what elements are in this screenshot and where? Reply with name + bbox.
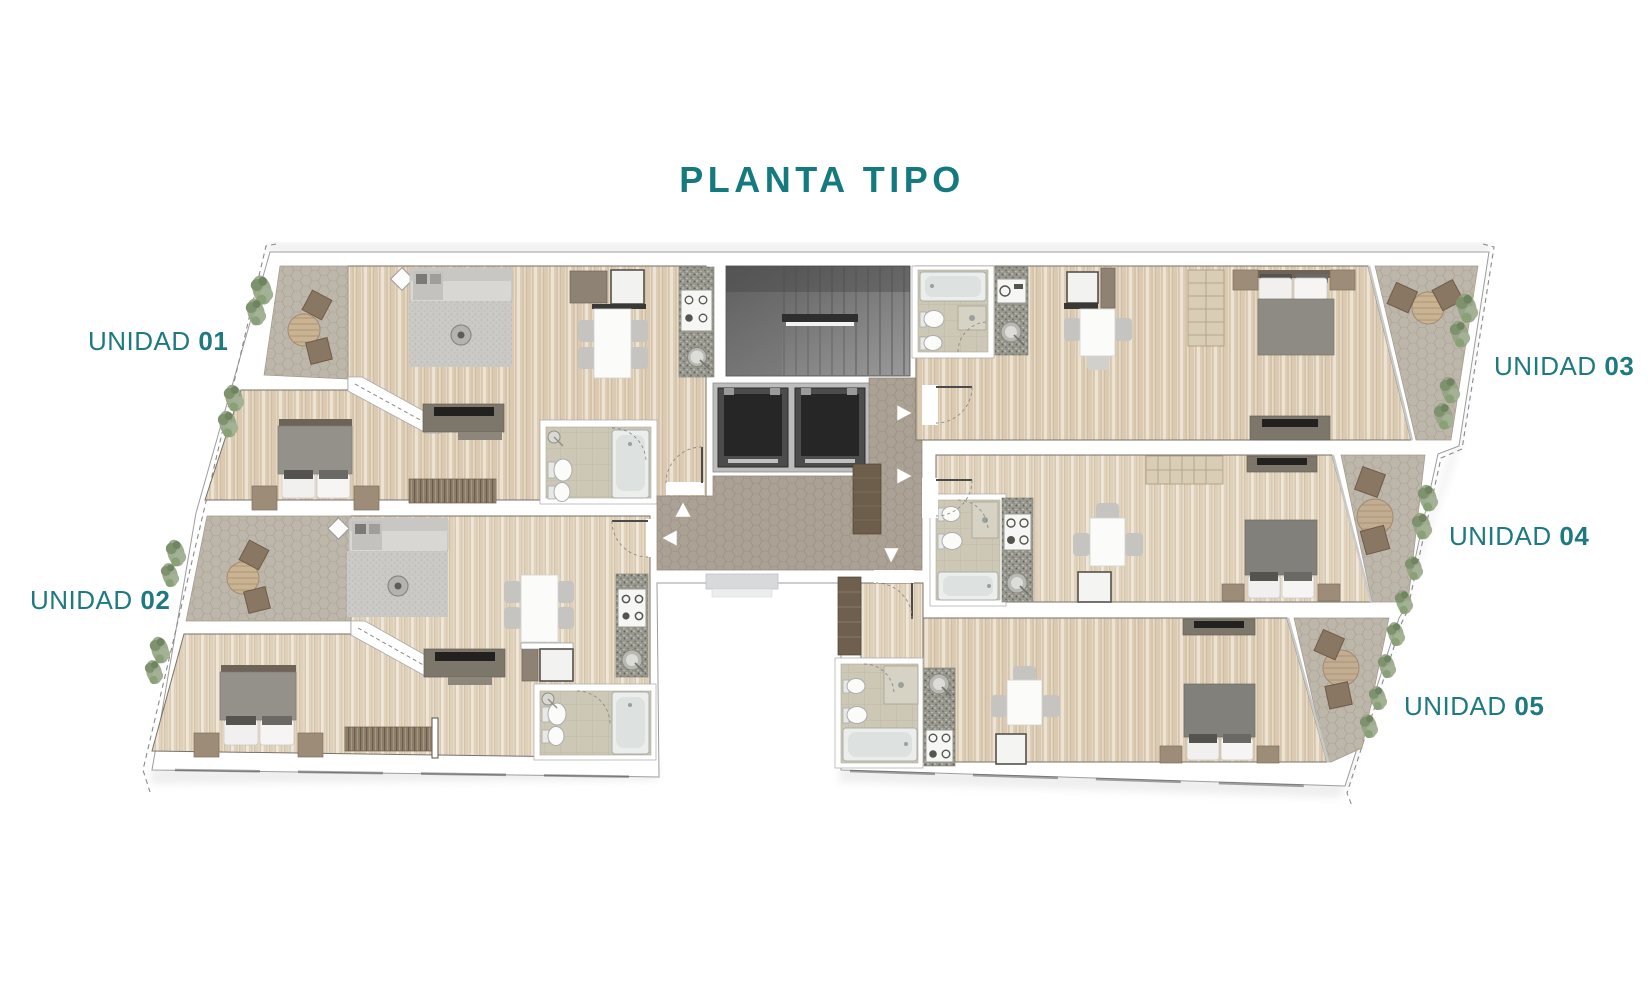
- svg-text:PLANTA TIPO: PLANTA TIPO: [679, 159, 965, 200]
- svg-text:UNIDAD 03: UNIDAD 03: [1494, 351, 1634, 381]
- svg-text:UNIDAD 04: UNIDAD 04: [1449, 521, 1589, 551]
- svg-text:UNIDAD 05: UNIDAD 05: [1404, 691, 1544, 721]
- svg-text:UNIDAD 02: UNIDAD 02: [30, 585, 170, 615]
- svg-text:UNIDAD 01: UNIDAD 01: [88, 326, 228, 356]
